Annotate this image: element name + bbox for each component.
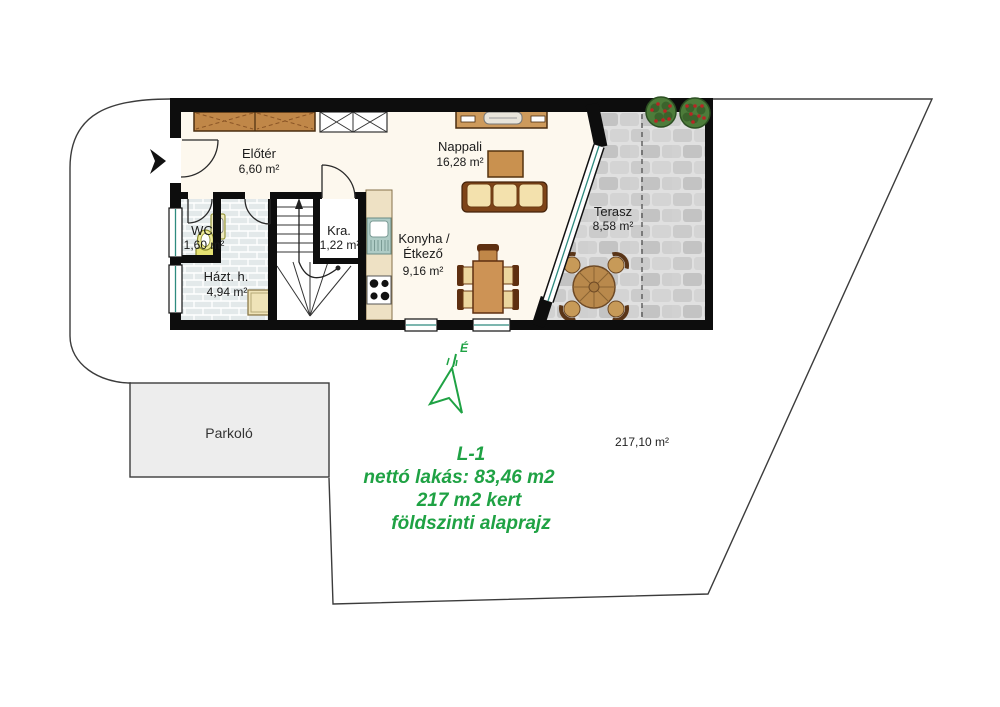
room-area-hazt: 4,94 m² [207, 285, 248, 299]
plant [646, 97, 676, 127]
room-area-kamra: 1,22 m² [320, 238, 361, 252]
room-label-hazt: Házt. h. [204, 269, 249, 284]
entrance-arrow-icon [150, 149, 166, 174]
dining-table [473, 261, 503, 313]
kitchen-sink [367, 218, 391, 254]
plant [680, 98, 710, 128]
hall-cabinet [320, 112, 387, 132]
annotation-block: L-1 nettó lakás: 83,46 m2 217 m2 kert fö… [363, 444, 555, 534]
window [169, 265, 182, 313]
north-label: É [460, 340, 469, 355]
room-area-terasz: 8,58 m² [593, 219, 634, 233]
window [169, 208, 182, 257]
floor-plan-page: Parkoló [0, 0, 1000, 707]
parking-area: Parkoló [130, 383, 329, 477]
terrace-table [573, 266, 615, 308]
stove [367, 276, 391, 304]
coffee-table [488, 151, 523, 177]
north-arrow-icon: É [430, 340, 469, 413]
floor-plan-svg: Parkoló [0, 0, 1000, 707]
window [405, 319, 437, 331]
plot-area-label: 217,10 m² [615, 435, 669, 449]
annotation-garden: 217 m2 kert [416, 490, 522, 511]
parking-label: Parkoló [205, 425, 253, 441]
room-label-terasz: Terasz [594, 204, 632, 219]
room-area-konyha: 9,16 m² [403, 264, 444, 278]
room-label-nappali: Nappali [438, 139, 482, 154]
sofa [462, 182, 547, 212]
annotation-floor: földszinti alaprajz [391, 513, 551, 534]
wardrobe [194, 112, 315, 131]
room-label-konyha-2: Étkező [403, 246, 443, 261]
room-label-eloter: Előtér [242, 146, 277, 161]
room-area-nappali: 16,28 m² [436, 155, 483, 169]
wall-diagonal-bottom [538, 298, 547, 326]
sideboard [456, 110, 547, 128]
kitchen-counter [366, 190, 392, 320]
annotation-net-area: nettó lakás: 83,46 m2 [363, 467, 555, 488]
room-area-wc: 1,60 m² [184, 238, 225, 252]
room-label-kamra: Kra. [327, 223, 351, 238]
annotation-unit-id: L-1 [457, 444, 486, 465]
room-label-wc: WC [191, 223, 213, 238]
room-area-eloter: 6,60 m² [239, 162, 280, 176]
room-label-konyha-1: Konyha / [398, 231, 450, 246]
window [473, 319, 510, 331]
wall-diagonal-top [592, 104, 601, 147]
